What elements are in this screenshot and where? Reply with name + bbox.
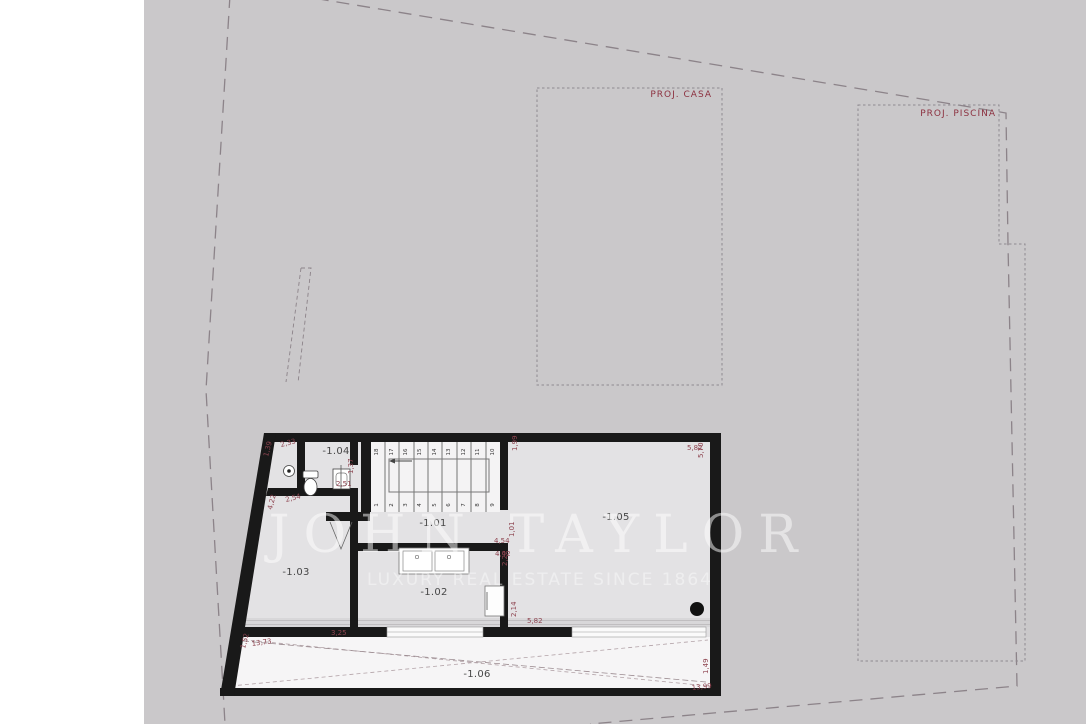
floor-drain-icon <box>284 466 295 477</box>
svg-text:12: 12 <box>461 449 467 456</box>
wall-top <box>264 433 721 442</box>
wall-bottom-band-mid <box>483 627 572 637</box>
wall-stair-left <box>361 433 371 512</box>
floor-plan-page: PROJ. CASA PROJ. PISCINA <box>0 0 1086 724</box>
dimension-label: 3,25 <box>331 629 347 637</box>
wall-stair-right <box>500 433 508 510</box>
proj-casa-label: PROJ. CASA <box>650 90 712 100</box>
watermark-tagline: LUXURY REAL ESTATE SINCE 1864 <box>367 570 713 590</box>
wall-bottom-band-left <box>237 627 387 637</box>
wall-bottom <box>220 688 721 696</box>
kitchen-appliance-icon <box>485 586 504 616</box>
dimension-label: 1,49 <box>702 658 710 674</box>
svg-text:17: 17 <box>389 448 395 455</box>
wall-storage-bath <box>297 442 305 488</box>
site-plan-drawing: PROJ. CASA PROJ. PISCINA <box>0 0 1086 724</box>
room-label-104: -1.04 <box>322 446 349 457</box>
dimension-label: 5,70 <box>697 442 705 458</box>
toilet-tank-icon <box>303 471 318 478</box>
dimension-label: 1,99 <box>511 435 519 451</box>
svg-text:13: 13 <box>446 448 452 455</box>
dimension-label: 1,37 <box>347 458 355 474</box>
proj-piscina-label: PROJ. PISCINA <box>920 109 996 119</box>
svg-text:18: 18 <box>374 448 380 455</box>
dimension-label: 2,14 <box>510 601 518 617</box>
svg-text:15: 15 <box>417 448 423 455</box>
watermark-brand: JOHN TAYLOR <box>264 505 812 565</box>
svg-text:14: 14 <box>432 448 438 455</box>
staircase: 18 17 16 15 14 13 12 11 10 1 2 3 4 5 6 7… <box>371 442 500 512</box>
stair-numbers-top: 18 17 16 15 14 13 12 11 10 <box>374 448 496 455</box>
dimension-label: 5,82 <box>527 617 543 625</box>
svg-text:16: 16 <box>403 448 409 455</box>
svg-text:10: 10 <box>490 448 496 455</box>
window-sill-band <box>233 618 710 627</box>
column-dot <box>690 602 704 616</box>
room-label-103: -1.03 <box>282 567 309 578</box>
svg-text:11: 11 <box>475 449 481 456</box>
room-label-106: -1.06 <box>463 669 490 680</box>
toilet-bowl-icon <box>304 479 317 496</box>
dimension-label: 2,51 <box>336 480 352 488</box>
